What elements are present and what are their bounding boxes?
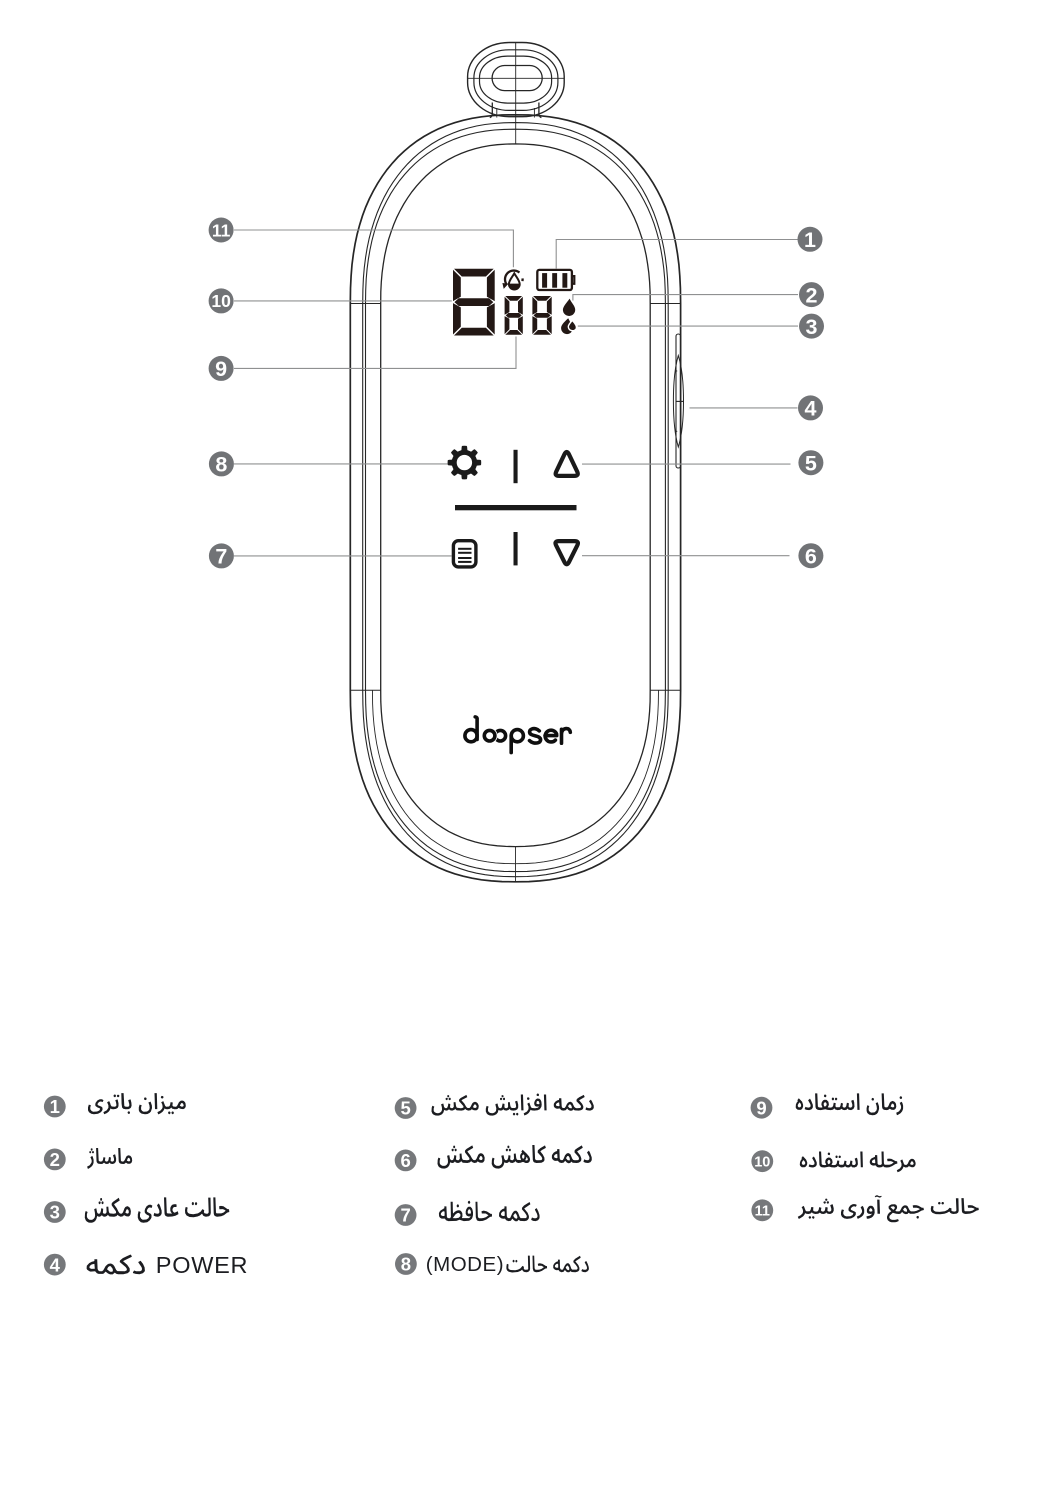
svg-text:11: 11 — [212, 220, 231, 240]
svg-text:11: 11 — [755, 1204, 770, 1220]
svg-text:2: 2 — [50, 1149, 60, 1170]
svg-text:9: 9 — [215, 357, 227, 381]
svg-text:3: 3 — [806, 315, 818, 339]
svg-text:8: 8 — [401, 1254, 411, 1275]
svg-text:7: 7 — [400, 1205, 410, 1226]
svg-text:2: 2 — [806, 283, 818, 307]
svg-text:5: 5 — [400, 1098, 410, 1119]
svg-text:9: 9 — [756, 1097, 766, 1118]
svg-text:7: 7 — [215, 545, 227, 569]
svg-text:3: 3 — [50, 1202, 60, 1223]
svg-text:4: 4 — [50, 1254, 61, 1275]
svg-text:6: 6 — [805, 544, 817, 568]
svg-text:1: 1 — [50, 1096, 60, 1117]
svg-text:8: 8 — [215, 453, 227, 477]
svg-text:10: 10 — [211, 291, 231, 311]
svg-text:5: 5 — [805, 451, 817, 475]
svg-text:6: 6 — [400, 1150, 410, 1171]
svg-text:4: 4 — [805, 397, 817, 421]
svg-text:(MODE): (MODE) — [426, 1253, 504, 1276]
svg-text:1: 1 — [804, 228, 816, 252]
svg-text:POWER: POWER — [156, 1252, 248, 1278]
svg-text:10: 10 — [754, 1154, 770, 1170]
